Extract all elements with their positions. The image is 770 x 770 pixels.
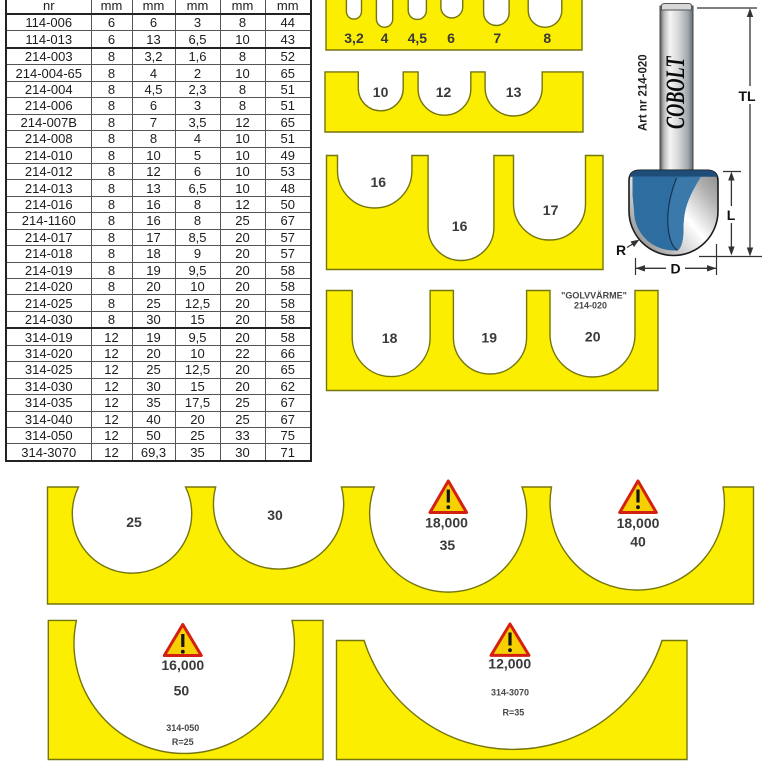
svg-text:16,000: 16,000 bbox=[161, 657, 204, 673]
svg-text:17: 17 bbox=[543, 202, 559, 218]
svg-text:18,000: 18,000 bbox=[425, 514, 468, 530]
svg-text:40: 40 bbox=[630, 534, 646, 550]
svg-text:7: 7 bbox=[493, 30, 501, 46]
svg-text:R: R bbox=[616, 242, 626, 258]
svg-text:16: 16 bbox=[371, 174, 387, 190]
svg-text:Art nr 214-020: Art nr 214-020 bbox=[638, 54, 650, 131]
svg-text:35: 35 bbox=[440, 537, 456, 553]
svg-text:16: 16 bbox=[452, 218, 468, 234]
svg-text:4: 4 bbox=[381, 30, 389, 46]
svg-text:TL: TL bbox=[738, 88, 756, 104]
svg-text:18,000: 18,000 bbox=[617, 515, 660, 531]
svg-text:19: 19 bbox=[481, 330, 497, 346]
svg-text:8: 8 bbox=[543, 30, 551, 46]
svg-text:314-050: 314-050 bbox=[166, 723, 199, 733]
svg-text:12,000: 12,000 bbox=[488, 656, 531, 672]
svg-text:20: 20 bbox=[585, 329, 601, 345]
svg-text:10: 10 bbox=[373, 84, 389, 100]
svg-text:COBOLT: COBOLT bbox=[661, 55, 690, 129]
svg-text:314-3070: 314-3070 bbox=[491, 687, 529, 697]
svg-text:L: L bbox=[727, 207, 736, 223]
svg-text:214-020: 214-020 bbox=[574, 301, 607, 311]
svg-text:13: 13 bbox=[506, 84, 522, 100]
svg-text:25: 25 bbox=[126, 514, 142, 530]
svg-text:4,5: 4,5 bbox=[408, 30, 428, 46]
svg-text:R=35: R=35 bbox=[503, 708, 525, 718]
svg-text:50: 50 bbox=[174, 682, 190, 698]
svg-text:30: 30 bbox=[267, 507, 283, 523]
svg-text:12: 12 bbox=[436, 84, 452, 100]
svg-text:3,2: 3,2 bbox=[344, 30, 364, 46]
svg-text:18: 18 bbox=[382, 330, 398, 346]
svg-text:D: D bbox=[670, 260, 680, 276]
svg-text:R=25: R=25 bbox=[172, 737, 194, 747]
svg-text:6: 6 bbox=[447, 30, 455, 46]
svg-text:"GOLVVÄRME": "GOLVVÄRME" bbox=[561, 291, 627, 301]
